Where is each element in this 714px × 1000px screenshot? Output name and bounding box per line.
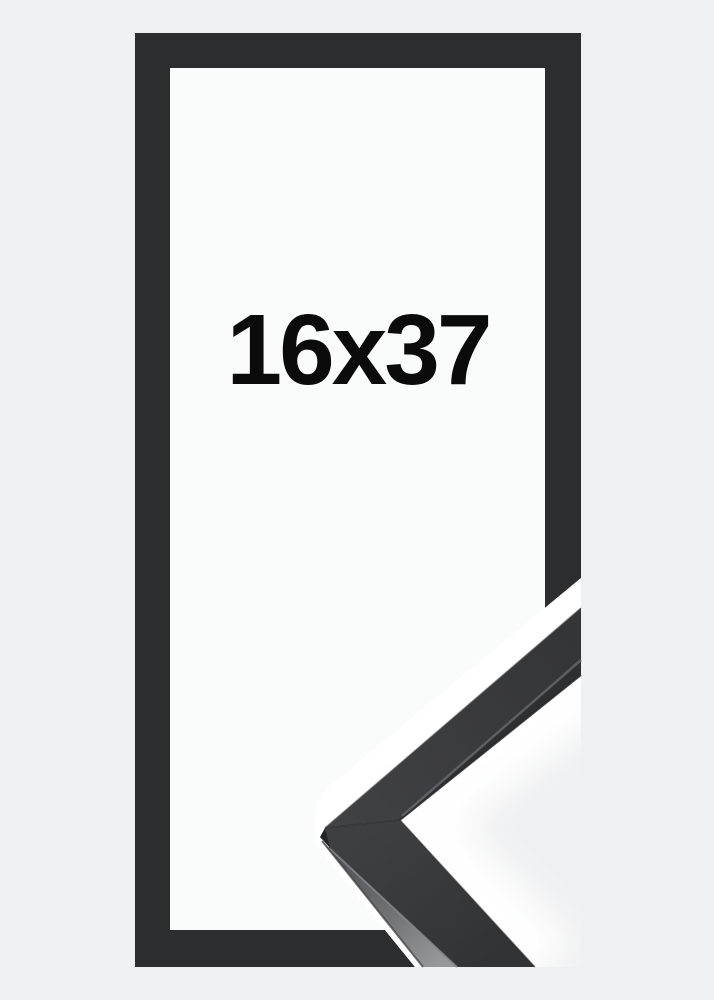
frame-illustration [0,0,714,1000]
product-image: 16x37 [0,0,714,1000]
size-label: 16x37 [135,308,581,392]
